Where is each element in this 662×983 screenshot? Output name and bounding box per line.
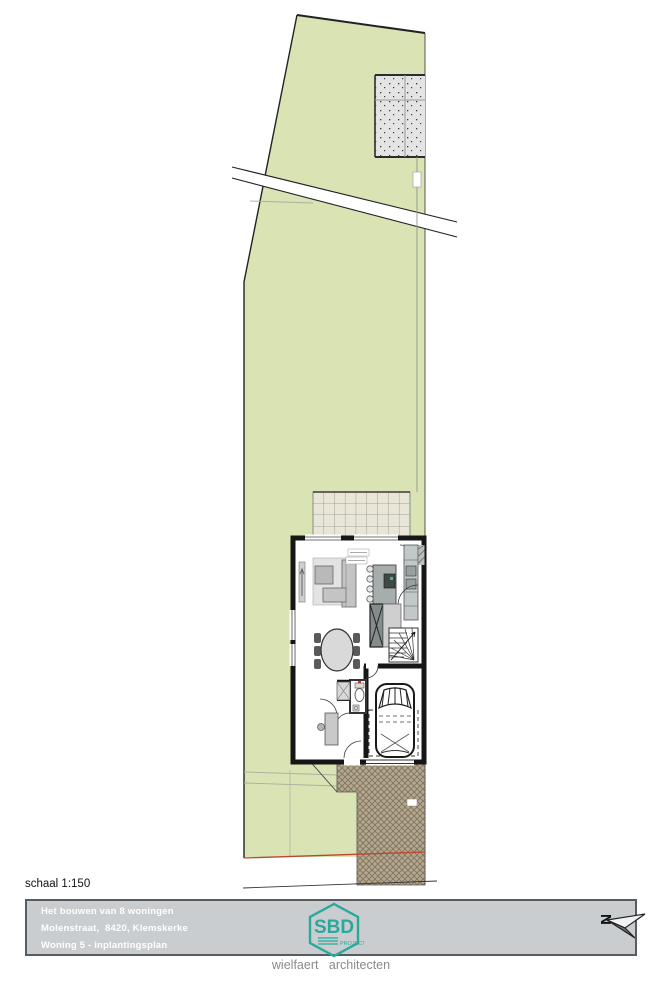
scale-label: schaal 1:150 <box>25 878 90 890</box>
entry-mat <box>337 682 350 700</box>
site-plan-drawing <box>0 0 662 895</box>
party-wall-hatch <box>419 545 425 565</box>
project-title: Het bouwen van 8 woningen <box>41 906 174 917</box>
sbd-logo: SBD PROJECT <box>304 901 364 958</box>
project-address: Molenstraat, 8420, Klemskerke <box>41 923 188 934</box>
garage-door <box>366 758 414 766</box>
title-block: Het bouwen van 8 woningen Molenstraat, 8… <box>25 899 637 956</box>
tall-cabinets <box>404 545 418 620</box>
house-plan <box>290 535 425 766</box>
window-left <box>290 610 297 666</box>
car <box>369 684 418 757</box>
terrace <box>313 492 410 538</box>
drawing-name: Woning 5 - inplantingsplan <box>41 940 167 951</box>
north-arrow: N <box>575 906 655 950</box>
dining-table <box>314 629 360 671</box>
stairs <box>389 628 418 662</box>
logo-subtext: PROJECT <box>340 941 364 947</box>
logo-text: SBD <box>314 917 354 938</box>
concrete-pad <box>375 75 425 157</box>
architect-name: wielfaert architecten <box>0 958 662 972</box>
entry-strip <box>299 562 305 602</box>
site-plan-page: schaal 1:150 Het bouwen van 8 woningen M… <box>0 0 662 983</box>
armchair <box>315 566 333 584</box>
